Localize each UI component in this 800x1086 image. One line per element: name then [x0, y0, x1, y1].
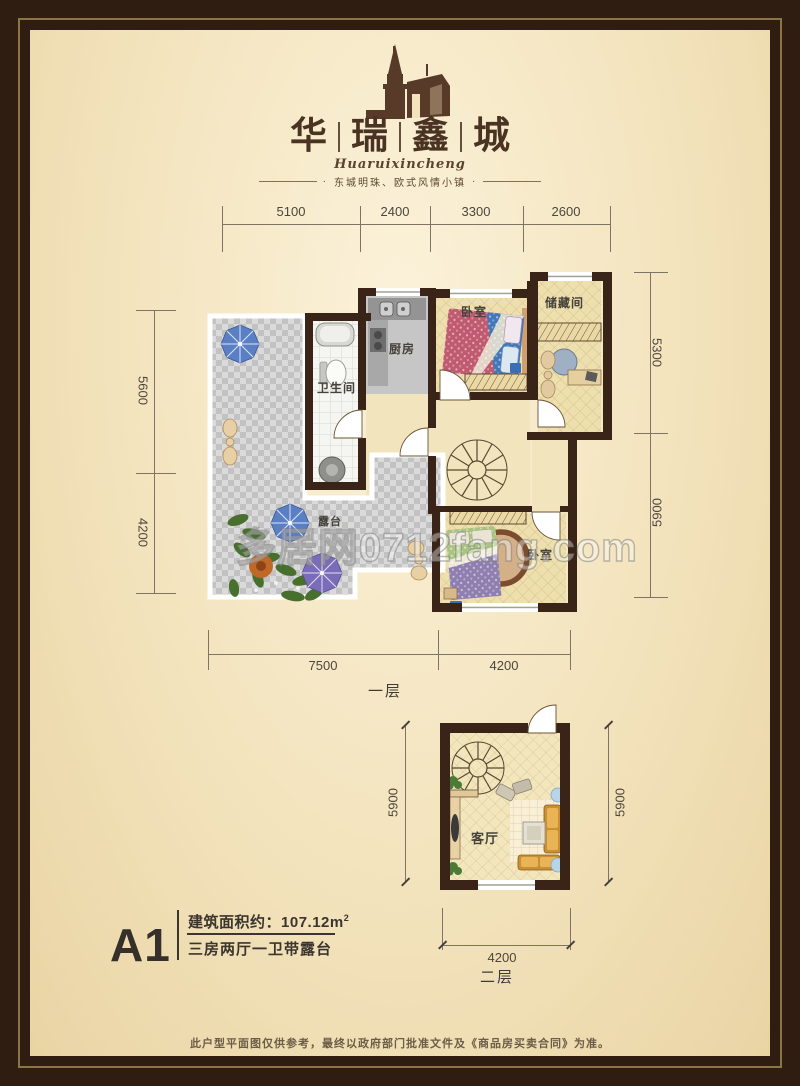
dim-top-3: 3300	[462, 204, 491, 219]
dim-top-4: 2600	[552, 204, 581, 219]
dim-line-bottom	[208, 654, 570, 655]
unit-area-value: 107.12m	[281, 914, 344, 931]
brand-char: 鑫	[412, 118, 449, 155]
dim-line-f2-left	[405, 725, 406, 882]
title-separator	[460, 122, 462, 152]
floor-mat	[510, 363, 521, 373]
dim-line-f2-bottom	[442, 945, 570, 946]
floor1-plan	[198, 258, 618, 648]
brand-tagline: · 东城明珠、欧式风情小镇 ·	[0, 174, 800, 189]
tagline-dot: ·	[323, 176, 328, 187]
brand-title: 华 瑞 鑫 城	[0, 118, 800, 155]
floor2-label: 二层	[480, 966, 514, 987]
dim-top-2: 2400	[381, 204, 410, 219]
dim-f2-right: 5900	[613, 781, 628, 825]
dim-line-f2-right	[608, 725, 609, 882]
room-label-kitchen: 厨房	[389, 340, 415, 357]
unit-rule	[187, 933, 335, 935]
shelf-icon	[530, 323, 601, 341]
unit-code: A1	[110, 918, 171, 972]
bathtub-icon	[316, 323, 354, 346]
unit-area-sup: 2	[344, 913, 350, 923]
dim-right-1: 5300	[650, 331, 665, 375]
tagline-rule	[259, 181, 317, 182]
dim-left-1: 5600	[136, 369, 151, 413]
dim-bottom-1: 7500	[309, 658, 338, 673]
unit-area: 建筑面积约：107.12m2	[188, 911, 349, 932]
unit-divider	[177, 910, 179, 960]
room-label-storage: 储藏间	[545, 294, 584, 311]
dim-bottom-2: 4200	[490, 658, 519, 673]
dim-line-right	[650, 272, 651, 597]
poster-page: 华 瑞 鑫 城 Huaruixincheng · 东城明珠、欧式风情小镇 · 5…	[0, 0, 800, 1086]
nightstand-icon	[444, 588, 457, 599]
brand-char: 瑞	[351, 118, 388, 155]
footer-disclaimer: 此户型平面图仅供参考，最终以政府部门批准文件及《商品房买卖合同》为准。	[0, 1035, 800, 1051]
door	[528, 705, 556, 733]
tagline-rule	[483, 181, 541, 182]
tagline-text: 东城明珠、欧式风情小镇	[334, 174, 466, 189]
room-label-bathroom: 卫生间	[317, 379, 356, 396]
brand-char: 华	[290, 118, 327, 155]
dim-line-left	[154, 310, 155, 593]
dim-f2-bottom: 4200	[488, 950, 517, 965]
brand-script: Huaruixincheng	[0, 157, 800, 172]
floor2-plan	[425, 695, 615, 910]
title-separator	[399, 122, 401, 152]
dim-left-2: 4200	[136, 511, 151, 555]
castle-logo-icon	[338, 44, 462, 124]
sink-icon	[319, 457, 345, 483]
title-separator	[338, 122, 340, 152]
unit-layout: 三房两厅一卫带露台	[188, 938, 332, 959]
dim-top-1: 5100	[277, 204, 306, 219]
floor1-label: 一层	[368, 680, 402, 701]
watermark: 多居网0712fang.com	[236, 515, 638, 573]
dim-line-top	[222, 224, 610, 225]
wardrobe-icon	[465, 374, 527, 390]
dim-right-2: 5900	[650, 491, 665, 535]
room-label-bedroom-top: 卧室	[461, 303, 487, 320]
tagline-dot: ·	[472, 176, 477, 187]
brand-char: 城	[473, 118, 510, 155]
dim-f2-left: 5900	[386, 781, 401, 825]
room-label-living: 客厅	[471, 828, 499, 847]
unit-area-prefix: 建筑面积约：	[188, 914, 281, 931]
